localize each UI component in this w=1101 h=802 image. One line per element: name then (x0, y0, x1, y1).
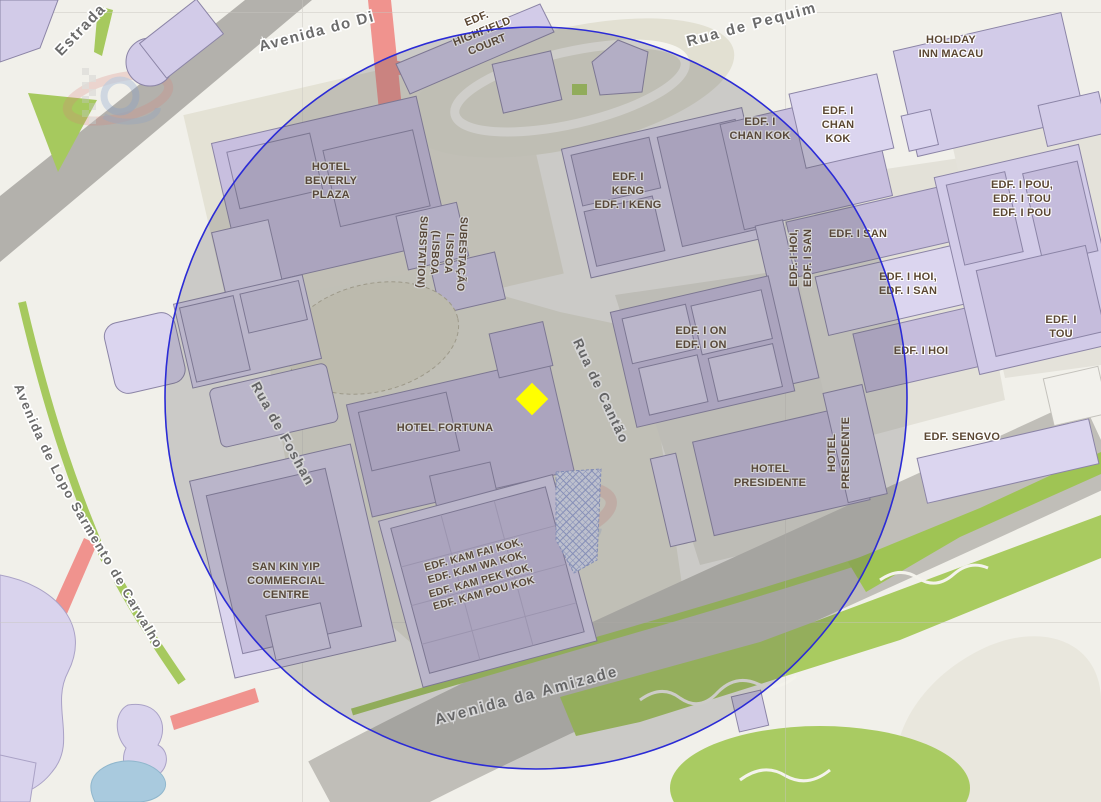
selection-overlay-layer (0, 0, 1101, 802)
map-canvas[interactable]: Estrada Avenida do Di Rua de Pequim Rua … (0, 0, 1101, 802)
